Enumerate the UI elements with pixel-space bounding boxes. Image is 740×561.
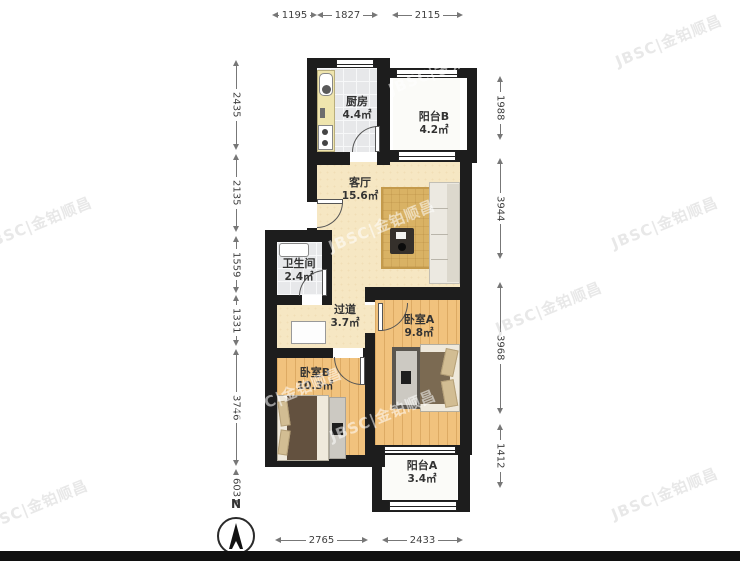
entry-door-leaf xyxy=(317,199,343,204)
arrow-down-icon xyxy=(233,144,239,150)
kitchen-window xyxy=(336,59,374,68)
dimension-value: 2435 xyxy=(231,89,242,120)
watermark: JBSC|金铂顺昌 xyxy=(608,192,721,254)
watermark: JBSC|金铂顺昌 xyxy=(492,277,605,339)
wall xyxy=(467,68,477,163)
dimension-value: 1195 xyxy=(279,10,310,21)
balcony-a-inner-window xyxy=(384,446,456,454)
sofa-seam xyxy=(431,259,448,260)
bathroom-basin xyxy=(279,243,309,257)
kitchen-door-leaf xyxy=(375,126,380,152)
dimension-value: 1331 xyxy=(231,305,242,336)
wall xyxy=(365,287,472,300)
room-area: 10.3㎡ xyxy=(297,380,333,394)
sofa-seam xyxy=(431,208,448,209)
bedroom-a-door-leaf xyxy=(378,303,383,331)
room-area: 15.6㎡ xyxy=(342,190,378,204)
stove-burner-icon xyxy=(322,140,328,146)
room-area: 2.4㎡ xyxy=(283,271,316,285)
bathroom-door-leaf xyxy=(322,269,327,296)
room-area: 3.4㎡ xyxy=(407,473,438,487)
compass-needle-notch xyxy=(232,541,240,549)
dimension-value: 1559 xyxy=(231,249,242,280)
arrow-down-icon xyxy=(497,408,503,414)
watermark: JBSC|金铂顺昌 xyxy=(0,475,91,537)
dimension-left-2135: 2135 xyxy=(229,154,243,232)
tv-icon xyxy=(401,371,411,384)
wall xyxy=(307,58,317,202)
room-name: 过道 xyxy=(330,303,359,317)
arrow-down-icon xyxy=(233,460,239,466)
dimension-top-2115: 2115 xyxy=(392,9,463,21)
wall xyxy=(460,160,472,290)
room-label-hallway: 过道 3.7㎡ xyxy=(330,303,359,331)
sofa-seam xyxy=(431,234,448,235)
dimension-bottom-2433: 2433 xyxy=(382,534,463,546)
arrow-right-icon xyxy=(457,537,463,543)
teapot-icon xyxy=(398,243,406,251)
balcony-a-window xyxy=(389,501,457,511)
room-label-living: 客厅 15.6㎡ xyxy=(342,176,378,204)
dimension-value: 1988 xyxy=(495,92,506,123)
wall xyxy=(460,290,472,455)
wall xyxy=(265,348,333,358)
dimension-value: 3944 xyxy=(495,193,506,224)
wall xyxy=(378,152,390,165)
arrow-down-icon xyxy=(233,287,239,293)
dimension-left-3746: 3746 xyxy=(229,349,243,466)
room-label-bedroom-b: 卧室B 10.3㎡ xyxy=(297,366,333,394)
wall xyxy=(265,295,302,305)
watermark: JBSC|金铂顺昌 xyxy=(612,10,725,72)
arrow-down-icon xyxy=(497,134,503,140)
dimension-left-2435: 2435 xyxy=(229,60,243,150)
arrow-right-icon xyxy=(457,12,463,18)
balcony-b-sliding-door-window xyxy=(398,151,456,161)
wall xyxy=(307,152,350,165)
dimension-value: 2115 xyxy=(412,10,443,21)
tv-icon xyxy=(332,423,343,435)
hallway-cabinet xyxy=(291,321,326,344)
arrow-down-icon xyxy=(497,482,503,488)
dimension-right-1988: 1988 xyxy=(493,76,507,140)
dimension-value: 3968 xyxy=(495,332,506,363)
stove-burner-icon xyxy=(322,129,328,135)
arrow-down-icon xyxy=(233,226,239,232)
bedroom-b-door-leaf xyxy=(360,357,365,385)
bottom-border-bar xyxy=(0,551,740,561)
arrow-right-icon xyxy=(372,12,378,18)
arrow-down-icon xyxy=(233,340,239,346)
arrow-right-icon xyxy=(362,537,368,543)
wall xyxy=(365,287,375,302)
dimension-value: 1827 xyxy=(332,10,363,21)
room-label-balcony-b: 阳台B 4.2㎡ xyxy=(419,110,449,138)
dimension-value: 2135 xyxy=(231,177,242,208)
room-area: 4.2㎡ xyxy=(419,124,449,138)
kitchen-faucet-icon xyxy=(320,108,325,118)
dimension-top-1195: 1195 xyxy=(272,9,317,21)
sofa-back-cushions xyxy=(447,184,459,282)
dimension-value: 3746 xyxy=(231,392,242,423)
table-item-icon xyxy=(396,232,406,239)
room-label-balcony-a: 阳台A 3.4㎡ xyxy=(407,459,438,487)
dimension-left-1331: 1331 xyxy=(229,295,243,346)
room-name: 客厅 xyxy=(342,176,378,190)
arrow-down-icon xyxy=(497,253,503,259)
balcony-b-window xyxy=(396,69,458,78)
bedroom-b-duvet xyxy=(287,396,317,460)
room-label-bedroom-a: 卧室A 9.8㎡ xyxy=(404,313,435,341)
dimension-top-1827: 1827 xyxy=(317,9,378,21)
dimension-bottom-2765: 2765 xyxy=(275,534,368,546)
dimension-value: 2433 xyxy=(407,535,438,546)
dimension-right-3944: 3944 xyxy=(493,158,507,259)
dimension-left-1559: 1559 xyxy=(229,236,243,293)
compass-north-label: N xyxy=(231,497,241,511)
room-name: 阳台B xyxy=(419,110,449,124)
room-label-bathroom: 卫生间 2.4㎡ xyxy=(283,257,316,285)
room-area: 9.8㎡ xyxy=(404,327,435,341)
dimension-value: 2765 xyxy=(306,535,337,546)
dimension-right-1412: 1412 xyxy=(493,424,507,488)
room-name: 卫生间 xyxy=(283,257,316,271)
room-name: 卧室B xyxy=(297,366,333,380)
dimension-value: 1412 xyxy=(495,440,506,471)
room-name: 厨房 xyxy=(342,95,371,109)
sink-drain-icon xyxy=(322,85,331,94)
room-area: 3.7㎡ xyxy=(330,317,359,331)
room-label-kitchen: 厨房 4.4㎡ xyxy=(342,95,371,123)
floor-plan-canvas: 厨房 4.4㎡ 阳台B 4.2㎡ 客厅 15.6㎡ 卫生间 2.4㎡ 过道 3.… xyxy=(0,0,740,561)
dimension-right-3968: 3968 xyxy=(493,282,507,414)
watermark: JBSC|金铂顺昌 xyxy=(0,192,95,254)
room-name: 阳台A xyxy=(407,459,438,473)
watermark: JBSC|金铂顺昌 xyxy=(608,463,721,525)
room-name: 卧室A xyxy=(404,313,435,327)
room-area: 4.4㎡ xyxy=(342,109,371,123)
